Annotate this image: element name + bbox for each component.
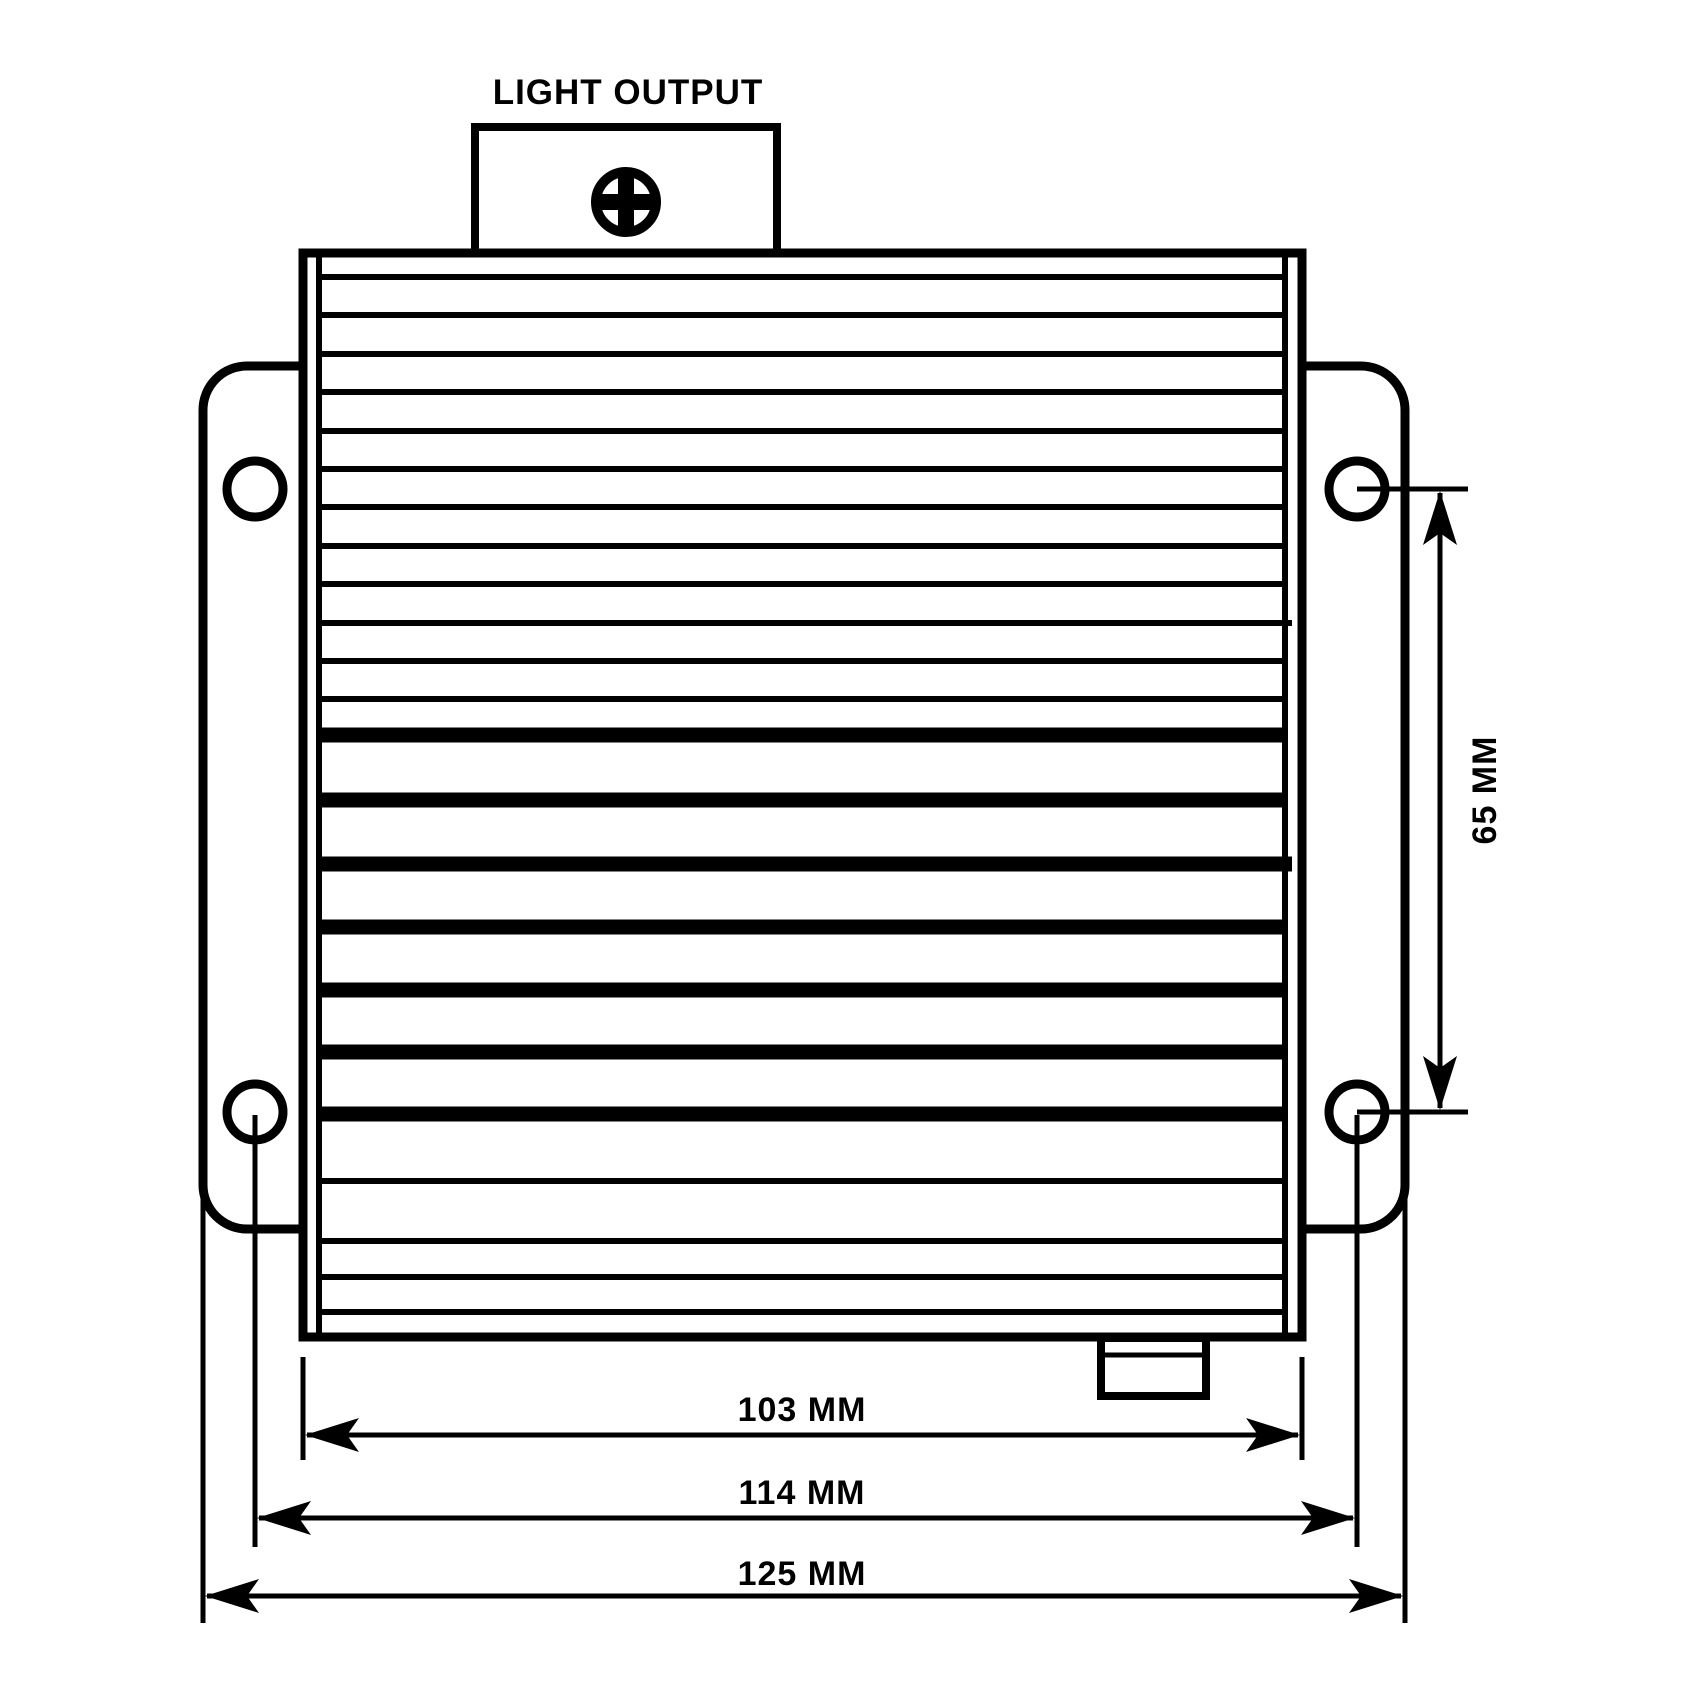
mounting-hole-top-left xyxy=(227,461,283,517)
bottom-connector-body xyxy=(1101,1338,1206,1396)
screw-cross-vertical xyxy=(618,175,634,229)
dimension-label-114mm: 114 MM xyxy=(739,1474,866,1512)
dimension-label-125mm: 125 MM xyxy=(738,1555,867,1593)
light-output-label: LIGHT OUTPUT xyxy=(493,73,764,112)
bottom-connector xyxy=(1101,1338,1206,1396)
dimension-label-65mm: 65 MM xyxy=(1466,736,1504,845)
technical-drawing-canvas: LIGHT OUTPUT xyxy=(0,0,1700,1700)
phillips-screw-icon xyxy=(596,172,656,232)
device-dimension-drawing: LIGHT OUTPUT xyxy=(0,0,1700,1700)
dimension-label-103mm: 103 MM xyxy=(738,1391,867,1429)
